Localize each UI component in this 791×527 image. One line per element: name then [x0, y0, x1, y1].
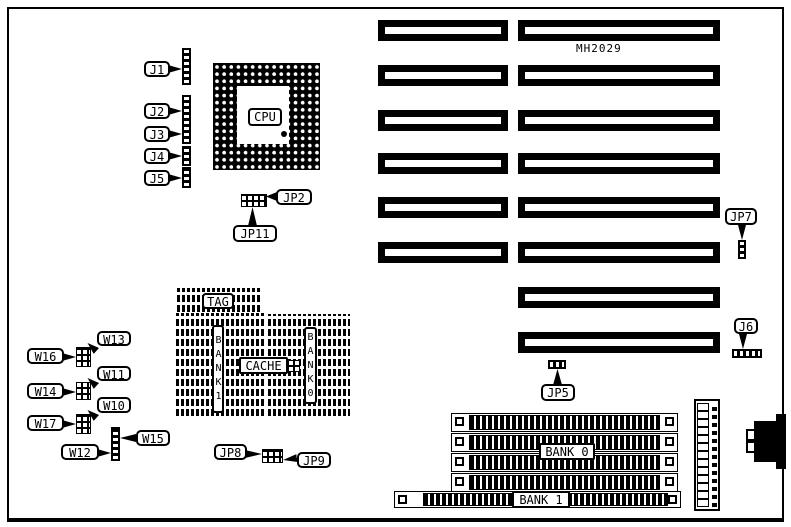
callout-w11: W11 [97, 366, 131, 381]
callout-w17: W17 [27, 415, 64, 431]
callout-w16: W16 [27, 348, 64, 364]
callout-w10: W10 [97, 397, 131, 413]
expansion-slot-segment [518, 287, 720, 308]
expansion-slot-segment [518, 65, 720, 86]
expansion-slot-segment [378, 65, 508, 86]
callout-j6: J6 [734, 318, 758, 334]
pin-header-j1 [182, 48, 191, 85]
jumper-block-cache [288, 360, 300, 372]
callout-w15: W15 [136, 430, 170, 446]
jumper-block-jp8-jp9 [262, 449, 283, 463]
jumper-block-w16-w13 [76, 347, 91, 367]
cache-label: CACHE [239, 357, 288, 374]
callout-w13: W13 [97, 331, 131, 346]
cpu-pin1-dot [281, 131, 287, 137]
callout-jp8: JP8 [214, 444, 247, 460]
pin-header-j5 [182, 167, 191, 188]
expansion-slot-segment [378, 197, 508, 218]
simm-bank0-label: BANK 0 [539, 443, 595, 460]
jumper-block-w17-w10 [76, 414, 91, 434]
jumper-block-jp2-jp11 [241, 194, 267, 207]
jumper-strip-w12-w15 [111, 427, 120, 461]
callout-jp9: JP9 [297, 452, 331, 468]
expansion-slot-segment [518, 197, 720, 218]
expansion-slot-segment [518, 153, 720, 174]
tag-label: TAG [202, 293, 234, 309]
simm-socket [451, 413, 678, 432]
pin-header-j6 [732, 349, 762, 358]
pin-header-j3 [182, 124, 191, 144]
pin-header-j2 [182, 95, 191, 126]
keyboard-connector-body [754, 421, 786, 462]
board-model: MH2029 [576, 42, 622, 55]
callout-jp11: JP11 [233, 225, 277, 242]
cache-bank1-label: BANK1 [212, 325, 224, 413]
callout-w14: W14 [27, 383, 64, 399]
pin-header-j4 [182, 146, 191, 166]
expansion-slot-segment [378, 110, 508, 131]
expansion-slot-segment [518, 332, 720, 353]
callout-jp7: JP7 [725, 208, 757, 225]
expansion-slot-segment [518, 242, 720, 263]
cache-bank0-label: BANK0 [304, 327, 317, 404]
motherboard-diagram: MH2029 J1 J2 J3 J4 J5 CPU JP2 JP11 JP7 J… [0, 0, 791, 527]
simm-socket [451, 473, 678, 492]
expansion-slot-segment [378, 153, 508, 174]
callout-j5: J5 [144, 170, 170, 186]
jumper-jp7 [738, 240, 746, 259]
callout-j4: J4 [144, 148, 170, 164]
callout-jp5: JP5 [541, 384, 575, 401]
callout-jp2: JP2 [276, 189, 312, 205]
jumper-block-w14-w11 [76, 382, 91, 400]
callout-j2: J2 [144, 103, 170, 119]
keyboard-connector-pin [746, 441, 756, 453]
power-connector [694, 399, 720, 511]
expansion-slot-segment [518, 110, 720, 131]
expansion-slot-segment [518, 20, 720, 41]
callout-j3: J3 [144, 126, 170, 142]
callout-w12: W12 [61, 444, 99, 460]
cpu-label: CPU [248, 108, 282, 126]
expansion-slot-segment [378, 242, 508, 263]
keyboard-connector-pin [746, 429, 756, 441]
jumper-jp5 [548, 360, 566, 369]
expansion-slot-segment [378, 20, 508, 41]
simm-bank1-label: BANK 1 [512, 491, 570, 508]
callout-j1: J1 [144, 61, 170, 77]
